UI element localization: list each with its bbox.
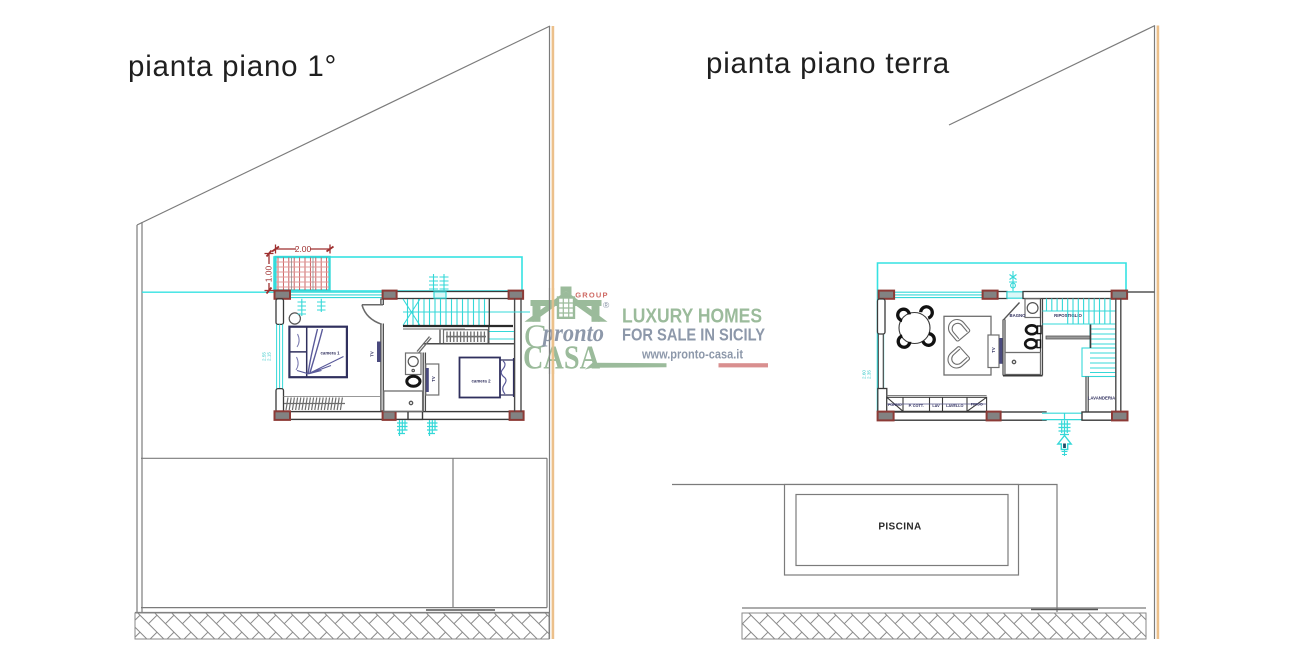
svg-text:TV: TV bbox=[431, 376, 436, 382]
svg-text:pianta piano 1°: pianta piano 1° bbox=[128, 50, 337, 83]
svg-text:®: ® bbox=[603, 300, 610, 310]
svg-text:LAVANDERIA: LAVANDERIA bbox=[1088, 396, 1116, 401]
svg-text:TV: TV bbox=[370, 351, 375, 357]
svg-text:GROUP: GROUP bbox=[575, 291, 609, 300]
svg-text:1.00: 1.00 bbox=[264, 265, 274, 282]
svg-text:FRIGO: FRIGO bbox=[971, 403, 983, 407]
svg-text:BAGNO: BAGNO bbox=[1010, 313, 1027, 318]
svg-text:2.35: 2.35 bbox=[867, 370, 872, 379]
svg-text:P. COTT.: P. COTT. bbox=[909, 404, 924, 408]
svg-text:LAV: LAV bbox=[932, 404, 940, 408]
svg-text:FOR SALE IN SICILY: FOR SALE IN SICILY bbox=[622, 325, 765, 345]
svg-text:camera 1: camera 1 bbox=[320, 351, 340, 356]
svg-text:www.pronto-casa.it: www.pronto-casa.it bbox=[641, 347, 743, 362]
svg-text:TV: TV bbox=[991, 347, 996, 353]
svg-text:PISCINA: PISCINA bbox=[878, 522, 921, 533]
svg-text:LAVELLO: LAVELLO bbox=[946, 404, 963, 408]
svg-text:camera 2: camera 2 bbox=[471, 379, 491, 384]
svg-text:CASA: CASA bbox=[523, 340, 600, 377]
svg-text:2.00: 2.00 bbox=[295, 244, 312, 254]
svg-text:pianta piano terra: pianta piano terra bbox=[706, 47, 950, 80]
svg-text:2.15: 2.15 bbox=[267, 352, 272, 361]
svg-text:FORNO: FORNO bbox=[888, 403, 902, 407]
